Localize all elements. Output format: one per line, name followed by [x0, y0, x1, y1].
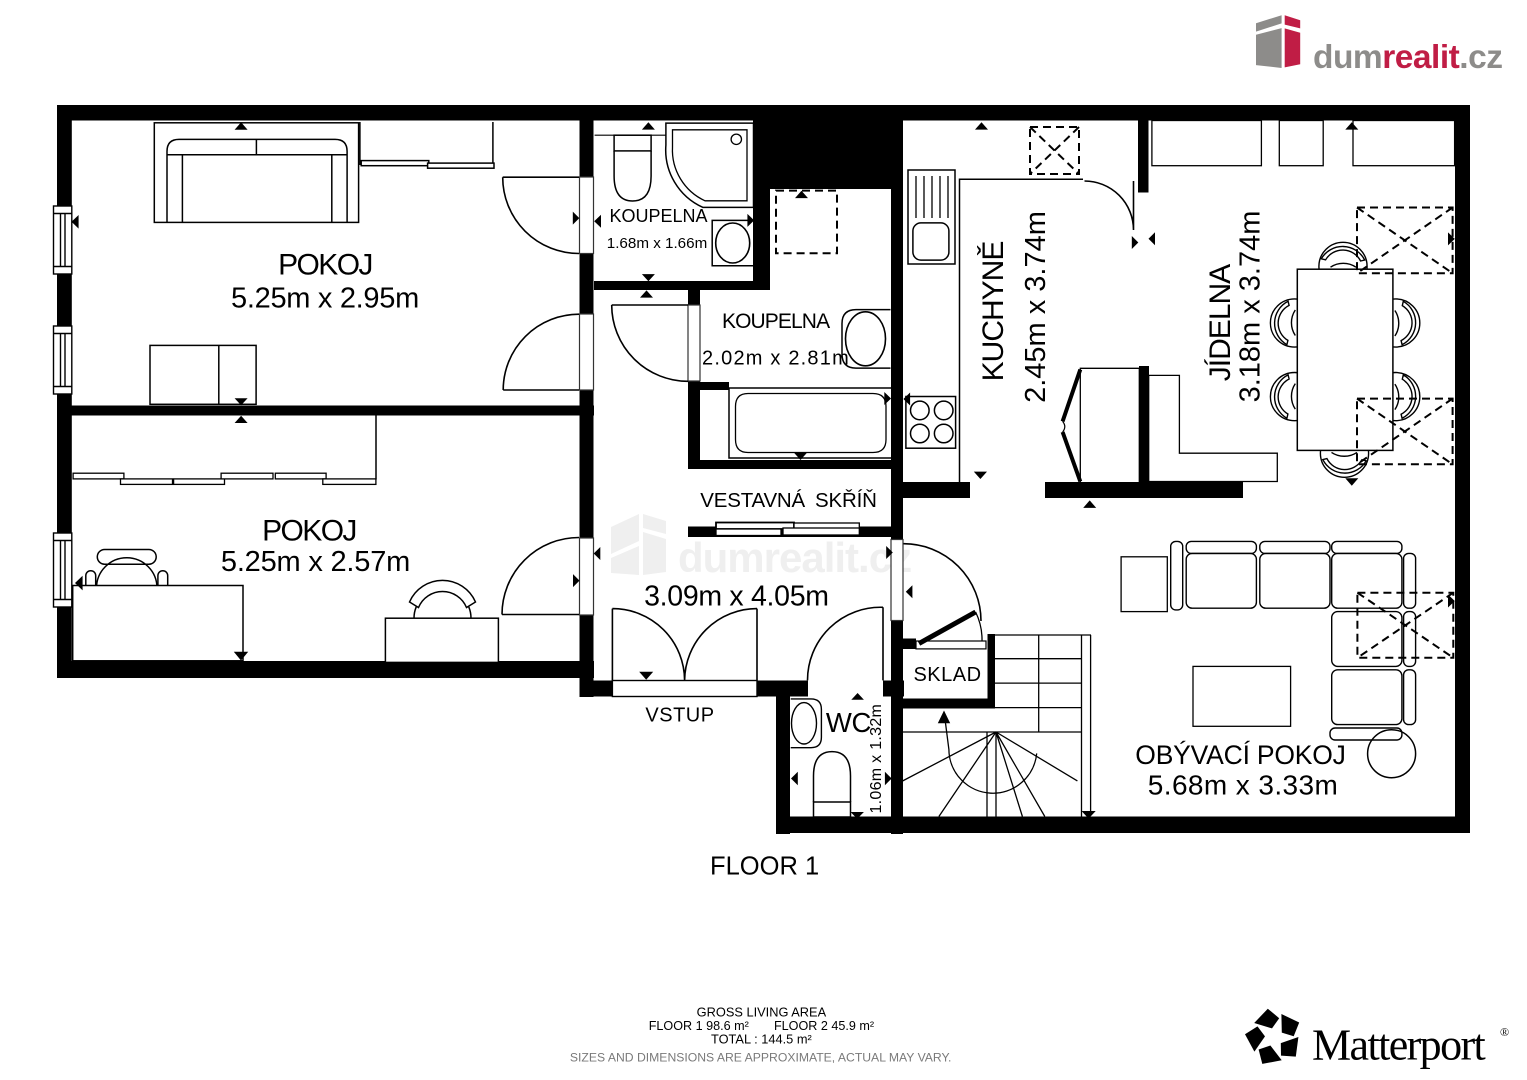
svg-text:GROSS LIVING AREA: GROSS LIVING AREA [697, 1005, 827, 1020]
svg-text:5.68m x 3.33m: 5.68m x 3.33m [1148, 770, 1338, 801]
svg-text:POKOJ: POKOJ [262, 515, 356, 548]
svg-text:OBÝVACÍ POKOJ: OBÝVACÍ POKOJ [1135, 740, 1345, 770]
svg-text:3.18m x 3.74m: 3.18m x 3.74m [1235, 211, 1267, 403]
svg-text:dumrealit.cz: dumrealit.cz [1313, 39, 1503, 76]
svg-text:Matterport: Matterport [1312, 1020, 1486, 1069]
svg-text:KOUPELNA: KOUPELNA [722, 310, 830, 333]
svg-text:2.45m x 3.74m: 2.45m x 3.74m [1020, 211, 1052, 403]
svg-text:KUCHYNĚ: KUCHYNĚ [977, 242, 1010, 382]
svg-text:2.02m x 2.81m: 2.02m x 2.81m [702, 348, 850, 370]
svg-text:dumrealit.cz: dumrealit.cz [678, 534, 911, 581]
svg-text:5.25m x 2.95m: 5.25m x 2.95m [231, 283, 419, 315]
svg-text:SKLAD: SKLAD [913, 664, 981, 686]
svg-text:1.68m x 1.66m: 1.68m x 1.66m [607, 235, 707, 252]
svg-text:POKOJ: POKOJ [278, 248, 372, 281]
svg-text:JÍDELNA: JÍDELNA [1204, 264, 1237, 381]
svg-text:3.09m x 4.05m: 3.09m x 4.05m [644, 581, 829, 613]
svg-text:KOUPELNA: KOUPELNA [609, 206, 707, 226]
svg-text:FLOOR 1: FLOOR 1 [710, 852, 819, 880]
svg-text:VESTAVNÁ SKŘÍŇ: VESTAVNÁ SKŘÍŇ [700, 489, 876, 512]
svg-text:SIZES AND DIMENSIONS ARE APPRO: SIZES AND DIMENSIONS ARE APPROXIMATE, AC… [570, 1051, 952, 1065]
svg-text:®: ® [1500, 1025, 1509, 1039]
svg-text:WC: WC [826, 707, 871, 738]
svg-text:1.06m x 1.32m: 1.06m x 1.32m [868, 704, 885, 814]
svg-text:VSTUP: VSTUP [645, 704, 714, 726]
svg-text:5.25m x 2.57m: 5.25m x 2.57m [221, 546, 410, 578]
svg-text:TOTAL : 144.5 m²: TOTAL : 144.5 m² [711, 1032, 812, 1047]
